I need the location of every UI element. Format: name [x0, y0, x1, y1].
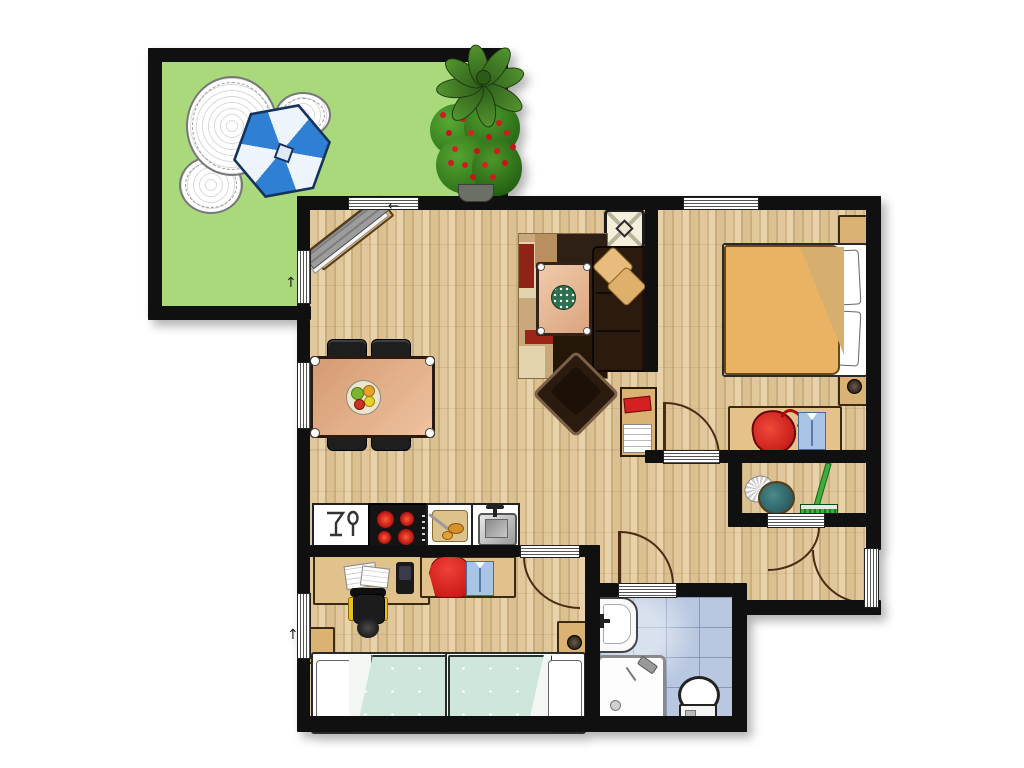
cooktop[interactable] [368, 503, 430, 550]
fruit [351, 387, 364, 400]
faucet-icon [600, 614, 604, 628]
office-chair[interactable] [348, 588, 388, 626]
table-corner [310, 356, 320, 366]
table-corner [583, 263, 591, 271]
wall-kitchen-a [297, 545, 520, 557]
phone-screen [399, 566, 411, 580]
window-bedroom-top[interactable] [683, 197, 759, 210]
bathroom-door-leaf [618, 531, 621, 583]
table-corner [537, 327, 545, 335]
table-corner [425, 356, 435, 366]
sofa-seam [596, 330, 640, 332]
duster-bucket [758, 481, 795, 515]
kitchen-cabinet[interactable] [312, 503, 372, 549]
wall-living-bedroom [645, 196, 658, 372]
bush-pot [458, 184, 494, 202]
nightstand-knob [567, 635, 582, 650]
blue-shirt [466, 561, 494, 596]
wall-bedroom-south-b [718, 450, 881, 463]
shirt-buttons [811, 420, 813, 446]
burner [377, 511, 394, 528]
wall-bottom [297, 716, 747, 732]
shower-drain [610, 700, 621, 711]
paper-lamp[interactable] [604, 209, 645, 249]
rug-patch [519, 346, 545, 378]
garden-wall-left [148, 48, 162, 320]
shower-hose [626, 667, 637, 681]
bedroom-door-leaf [663, 402, 666, 452]
nightstand-knob [847, 379, 862, 394]
shelf-boards [623, 424, 652, 453]
kitchen-sink[interactable] [478, 513, 517, 546]
garden-lawn [162, 196, 297, 306]
serving-plate[interactable] [551, 285, 576, 310]
coffee-table[interactable] [536, 262, 592, 336]
table-corner [425, 428, 435, 438]
fruit [364, 396, 375, 407]
bathroom-door[interactable] [618, 583, 677, 598]
faucet-icon [486, 505, 504, 509]
floor-plan: ← ↑ ↑ [0, 0, 1024, 768]
arrow-up-icon: ↑ [285, 276, 297, 290]
kids-room-door[interactable] [520, 545, 580, 558]
window-garden-side[interactable] [297, 250, 311, 304]
shirt-collar [807, 413, 817, 420]
cooktop-controls [422, 513, 425, 541]
pillow [548, 660, 582, 724]
dresser[interactable] [728, 406, 842, 454]
entrance-door[interactable] [864, 548, 879, 608]
arrow-left-icon: ← [388, 200, 399, 213]
window-dining-side[interactable] [297, 362, 311, 429]
table-corner [310, 428, 320, 438]
fruit-plate[interactable] [346, 380, 381, 415]
plant-center [476, 70, 491, 85]
arrow-up-icon: ↑ [287, 628, 299, 642]
armchair-seat [551, 366, 602, 417]
pillow [316, 660, 352, 724]
wall-bathroom-top-b [675, 583, 732, 597]
potted-plant[interactable] [436, 36, 528, 148]
burner [378, 531, 391, 544]
burner [398, 529, 414, 545]
counter-segment [426, 503, 475, 549]
bedroom-door[interactable] [663, 450, 720, 464]
red-sweater [429, 556, 471, 598]
bread-icon [442, 531, 453, 540]
papers [360, 565, 390, 588]
sink-basin [485, 519, 508, 538]
table-corner [583, 327, 591, 335]
fruit [354, 399, 365, 410]
wall-kids-right [585, 545, 600, 732]
burner [400, 512, 414, 526]
shower[interactable] [597, 655, 666, 723]
clothes-rack[interactable] [420, 556, 516, 598]
table-corner [537, 263, 545, 271]
broom-band [801, 505, 837, 509]
sink-segment [471, 503, 520, 549]
window-living-top[interactable] [348, 197, 419, 210]
wall-bathroom-top-a [585, 583, 618, 597]
dining-table[interactable] [310, 356, 435, 438]
double-bed[interactable] [722, 243, 868, 377]
wall-bedroom-south-a [645, 450, 665, 463]
closet-door[interactable] [767, 513, 825, 528]
telephone [396, 562, 414, 594]
folded-shirt [798, 412, 826, 450]
red-book [623, 396, 651, 414]
bookshelf[interactable] [620, 387, 657, 457]
bathroom-sink[interactable] [596, 597, 638, 653]
glass-spoon-icon [319, 509, 363, 541]
wall-hall-bottom [740, 600, 881, 615]
chair-base [357, 618, 379, 638]
floor-plan-canvas: ← ↑ ↑ [0, 0, 1024, 768]
rug-patch [519, 244, 534, 288]
shirt-buttons [479, 568, 481, 592]
window-kids-side[interactable] [297, 593, 311, 659]
sink-basin [603, 604, 631, 644]
wall-closet-bottom-a [728, 513, 768, 527]
wall-closet-bottom-b [822, 513, 881, 527]
shower-head [637, 655, 658, 674]
wall-right-upper [866, 196, 881, 550]
garden-wall-bottom [148, 306, 311, 320]
lamp-center [615, 219, 633, 237]
